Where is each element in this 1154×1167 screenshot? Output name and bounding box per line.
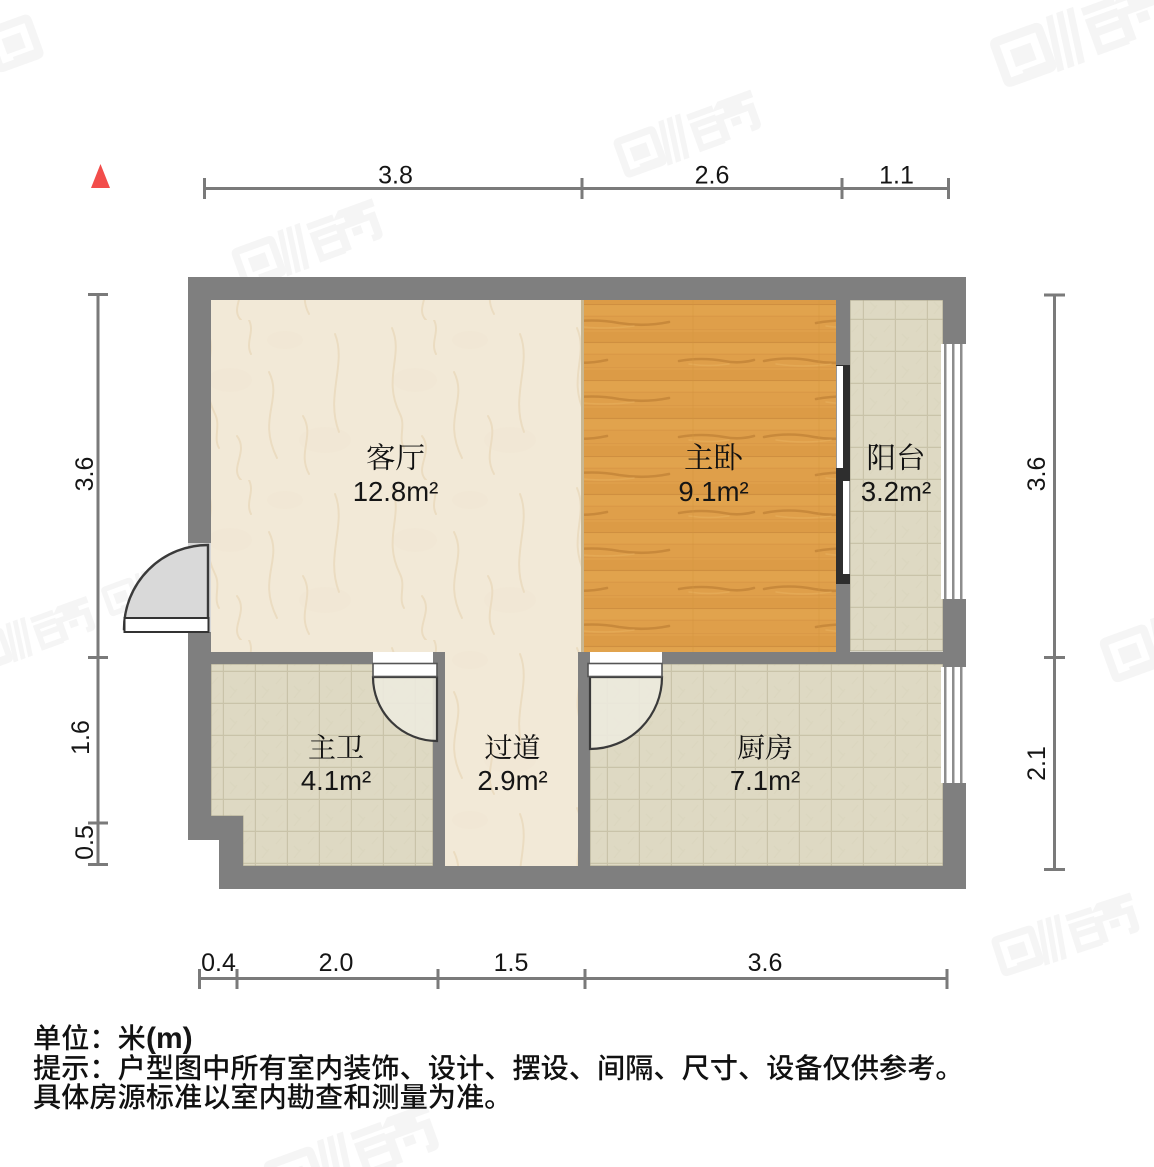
svg-text:1.5: 1.5: [494, 949, 529, 977]
svg-text:2.1: 2.1: [1023, 746, 1051, 781]
svg-text:1.1: 1.1: [879, 162, 914, 190]
svg-text:3.2m²: 3.2m²: [861, 476, 931, 507]
svg-text:3.6: 3.6: [748, 949, 783, 977]
svg-text:9.1m²: 9.1m²: [678, 476, 748, 507]
svg-text:12.8m²: 12.8m²: [353, 476, 439, 507]
svg-text:4.1m²: 4.1m²: [301, 765, 371, 796]
svg-text:0.4: 0.4: [201, 949, 236, 977]
svg-text:2.0: 2.0: [319, 949, 354, 977]
svg-text:7.1m²: 7.1m²: [730, 765, 800, 796]
svg-text:0.5: 0.5: [71, 825, 99, 860]
svg-text:2.6: 2.6: [695, 162, 730, 190]
svg-text:(m): (m): [146, 1022, 193, 1055]
svg-text:3.6: 3.6: [71, 457, 99, 492]
svg-text:3.6: 3.6: [1023, 457, 1051, 492]
svg-text:3.8: 3.8: [378, 162, 413, 190]
svg-text:2.9m²: 2.9m²: [477, 765, 547, 796]
svg-text:1.6: 1.6: [67, 720, 95, 755]
